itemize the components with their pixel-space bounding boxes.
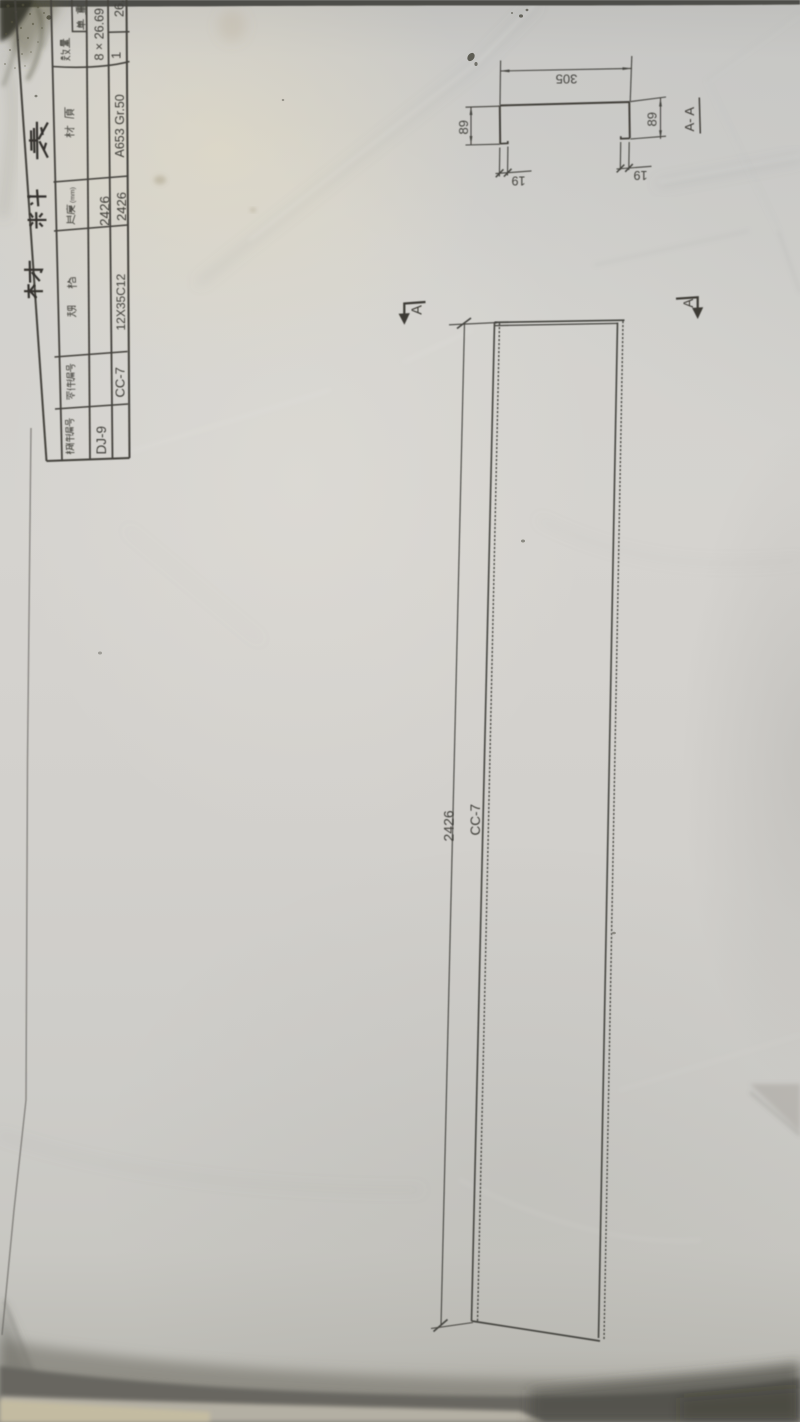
svg-text:89: 89 [645, 112, 660, 126]
svg-text:1: 1 [109, 52, 124, 59]
svg-text:A: A [410, 305, 426, 315]
svg-text:2426: 2426 [98, 196, 113, 226]
svg-text:A: A [681, 299, 696, 308]
svg-text:2426: 2426 [114, 192, 129, 221]
svg-text:2426: 2426 [441, 810, 457, 841]
svg-text:CC-7: CC-7 [468, 804, 483, 836]
svg-text:A- A: A- A [682, 107, 697, 132]
svg-text:12X35C12: 12X35C12 [114, 273, 128, 330]
svg-text:305: 305 [556, 72, 578, 87]
svg-text:8 × 26.69: 8 × 26.69 [93, 8, 107, 61]
svg-text:A653 Gr.50: A653 Gr.50 [113, 94, 127, 157]
svg-text:89: 89 [456, 120, 471, 134]
svg-text:19: 19 [512, 174, 526, 188]
svg-text:19: 19 [634, 168, 648, 182]
svg-text:CC-7: CC-7 [113, 367, 128, 397]
svg-text:26.: 26. [113, 0, 127, 17]
svg-text:(mm): (mm) [70, 187, 77, 203]
svg-text:DJ-9: DJ-9 [94, 426, 109, 455]
